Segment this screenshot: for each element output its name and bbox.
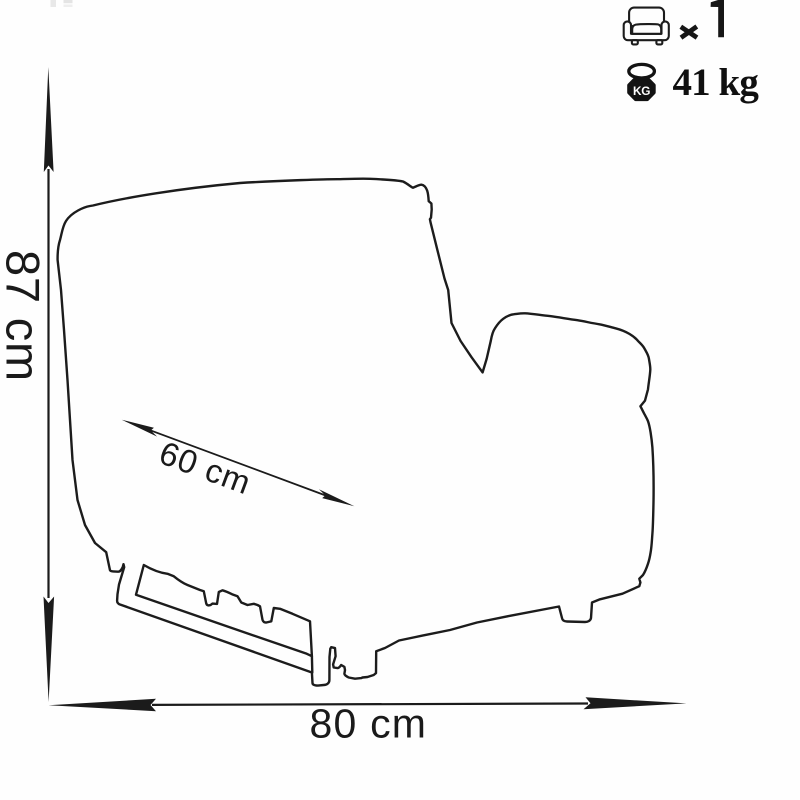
svg-text:KG: KG <box>633 84 650 98</box>
svg-text:60 cm: 60 cm <box>155 434 257 502</box>
svg-text:87 cm: 87 cm <box>0 250 50 382</box>
svg-text:80 cm: 80 cm <box>310 701 428 747</box>
svg-text:41 kg: 41 kg <box>673 61 760 104</box>
